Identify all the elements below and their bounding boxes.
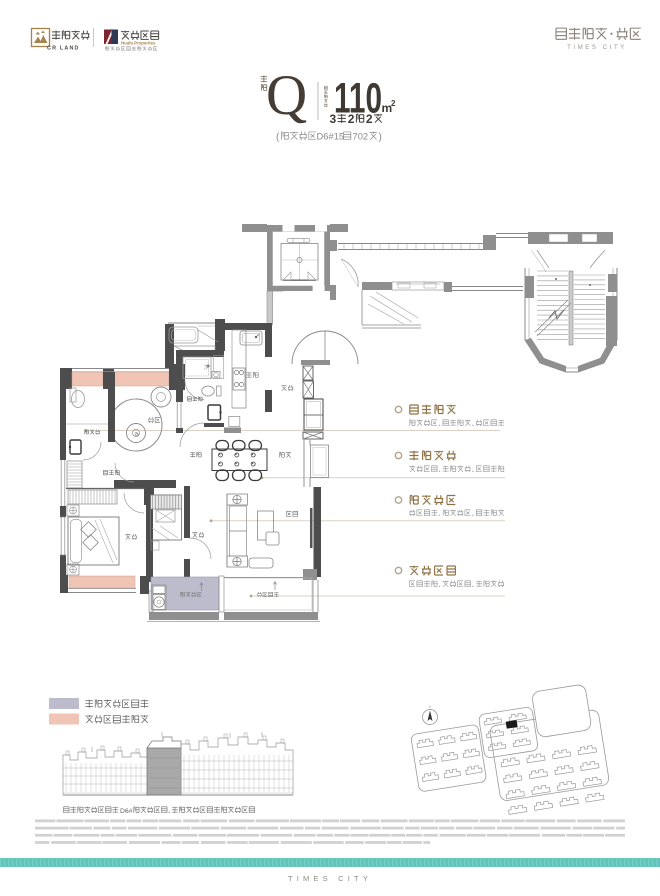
svg-text:): ): [379, 132, 382, 143]
svg-text:2: 2: [391, 99, 396, 108]
svg-text:TIMES CITY: TIMES CITY: [288, 874, 372, 883]
svg-text:Q: Q: [266, 64, 307, 127]
svg-text:2: 2: [366, 112, 373, 126]
svg-text:D6#: D6#: [120, 808, 133, 815]
svg-text:702: 702: [353, 131, 369, 142]
svg-text:CR LAND: CR LAND: [47, 46, 80, 52]
svg-text:D6#15: D6#15: [317, 131, 345, 142]
svg-text:(: (: [276, 132, 280, 143]
svg-text:3: 3: [330, 112, 337, 126]
svg-text:TIMES CITY: TIMES CITY: [567, 45, 627, 51]
svg-text:2: 2: [348, 112, 355, 126]
svg-text:Huafa Properties: Huafa Properties: [121, 41, 156, 46]
